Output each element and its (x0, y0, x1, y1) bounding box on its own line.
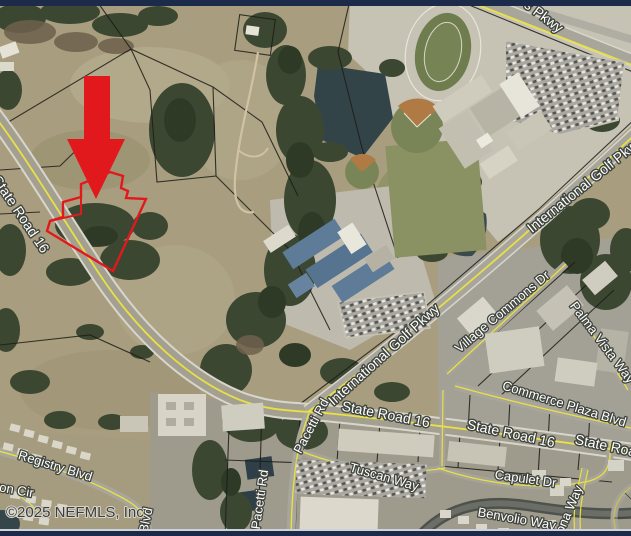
map-canvas: s Pkwy International Golf Pkwy Internati… (0, 0, 631, 536)
copyright-attribution: ©2025 NEFMLS, Inc (6, 504, 144, 521)
bottom-edge-strip (0, 529, 631, 531)
mls-satellite-map-image: s Pkwy International Golf Pkwy Internati… (0, 0, 631, 536)
bottom-letterbox-bar (0, 531, 631, 536)
top-letterbox-bar (0, 0, 631, 6)
